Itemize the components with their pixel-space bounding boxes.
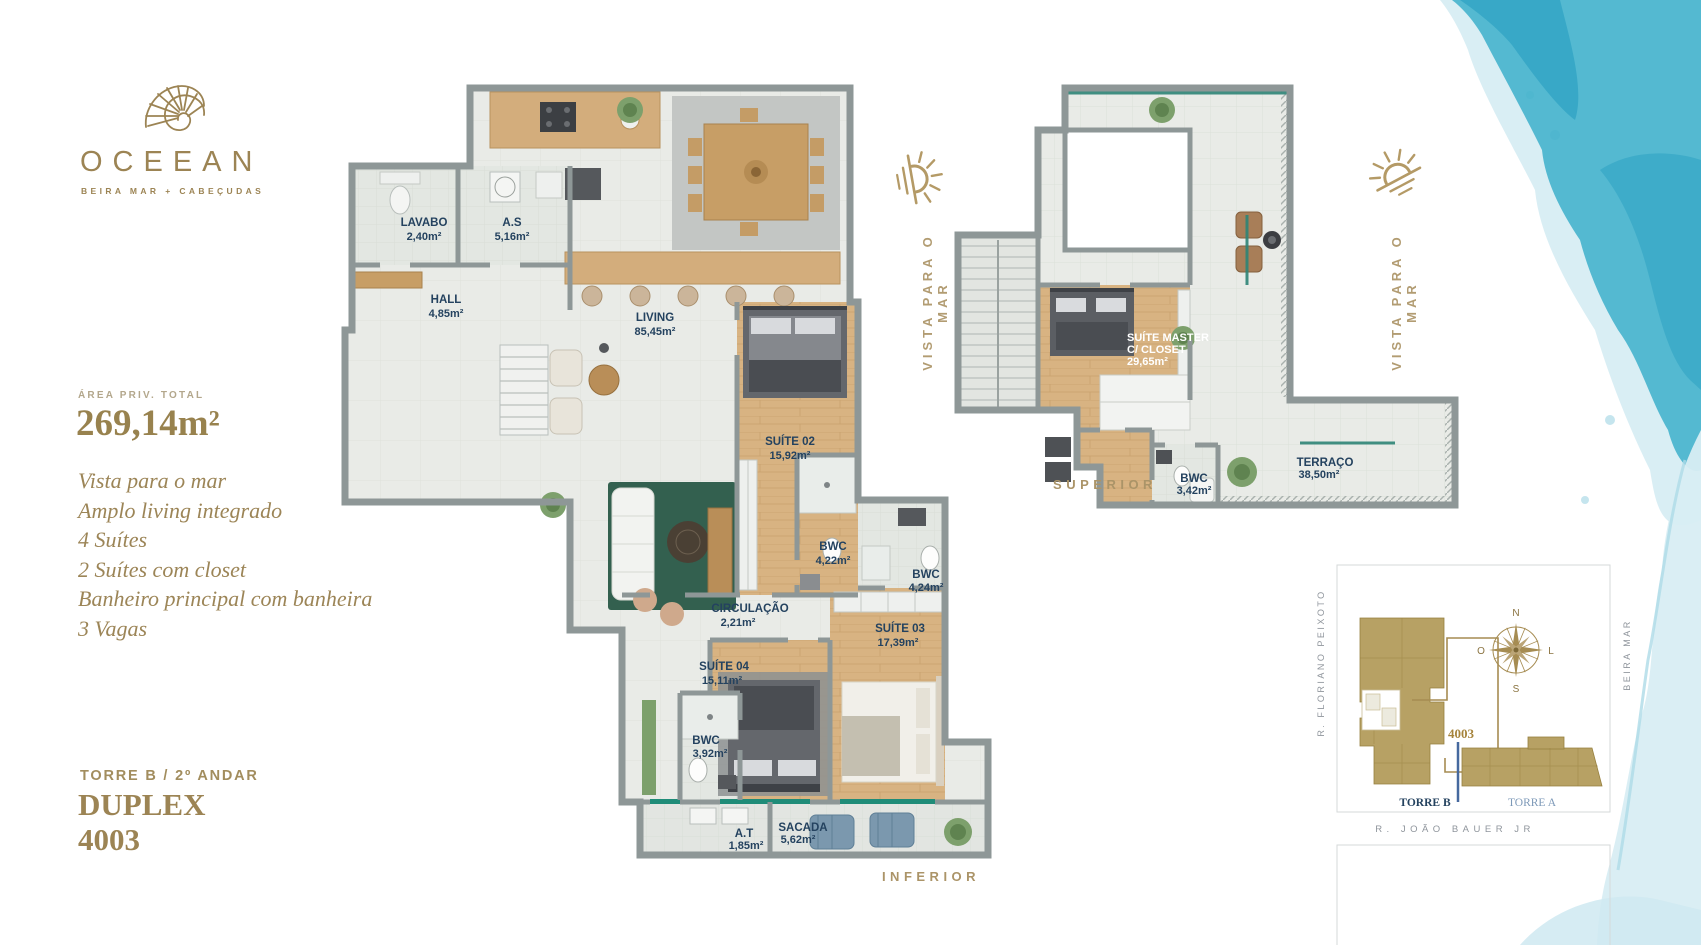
svg-text:5,16m²: 5,16m² [495, 231, 530, 243]
shell-logo-icon [134, 80, 214, 146]
svg-text:29,65m²: 29,65m² [1127, 356, 1168, 368]
svg-text:5,62m²: 5,62m² [781, 834, 816, 846]
private-area-value: 269,14m² [76, 402, 220, 445]
room-label-suite02: SUÍTE 02 [765, 435, 815, 448]
adjacent-block-frame [1337, 845, 1610, 945]
room-label-living: LIVING [636, 312, 674, 324]
floorplan-brochure: OCEEAN BEIRA MAR + CABEÇUDAS ÁREA PRIV. … [0, 0, 1701, 945]
inferior-caption: INFERIOR [856, 869, 1006, 884]
room-label-bwc3: BWC [692, 735, 719, 747]
room-label-suite-master: SUÍTE MASTER [1127, 331, 1209, 344]
svg-text:85,45m²: 85,45m² [635, 326, 676, 338]
svg-text:15,11m²: 15,11m² [702, 675, 743, 687]
room-label-bwc2: BWC [912, 569, 939, 581]
site-map: N S O L 4003 TORRE B TORRE A R. JOÃO BAU… [1310, 558, 1650, 945]
tower-floor-label: TORRE B / 2º ANDAR [80, 768, 259, 784]
brand-tagline: BEIRA MAR + CABEÇUDAS [81, 186, 341, 196]
street-floriano-peixoto-label: R. FLORIANO PEIXOTO [1316, 589, 1326, 736]
torre-b-label: TORRE B [1399, 797, 1451, 809]
unit-type-label: DUPLEX [78, 788, 205, 821]
superior-caption: SUPERIOR [1030, 477, 1180, 492]
svg-text:L: L [1548, 646, 1554, 657]
svg-text:N: N [1512, 608, 1519, 619]
street-beira-mar-label: BEIRA MAR [1622, 619, 1632, 691]
room-label-sacada: SACADA [778, 822, 827, 834]
private-area-label: ÁREA PRIV. TOTAL [78, 390, 204, 401]
svg-text:3,92m²: 3,92m² [693, 748, 728, 760]
room-label-as: A.S [502, 217, 522, 229]
svg-text:4,22m²: 4,22m² [816, 555, 851, 567]
inferior-floor-plan: LAVABO 2,40m² A.S 5,16m² HALL 4,85m² LIV… [340, 80, 1000, 864]
stairs [500, 345, 548, 435]
svg-text:O: O [1477, 646, 1485, 657]
svg-text:1,85m²: 1,85m² [729, 840, 764, 852]
torre-a-label: TORRE A [1508, 797, 1557, 809]
svg-text:17,39m²: 17,39m² [878, 637, 919, 649]
room-label-bwc1: BWC [819, 541, 846, 553]
svg-text:2,21m²: 2,21m² [721, 617, 756, 629]
room-label-at: A.T [735, 828, 754, 840]
room-label-lavabo: LAVABO [401, 217, 448, 229]
room-label-superior-bwc: BWC [1180, 473, 1207, 485]
room-label-suite03: SUÍTE 03 [875, 622, 925, 635]
superior-floor-plan: SUÍTE MASTER C/ CLOSET 29,65m² BWC 3,42m… [950, 80, 1465, 520]
room-label-hall: HALL [431, 294, 462, 306]
room-label-suite04: SUÍTE 04 [699, 660, 749, 673]
brand-name: OCEEAN [80, 146, 340, 179]
svg-text:15,92m²: 15,92m² [770, 450, 811, 462]
room-label-terraco: TERRAÇO [1297, 457, 1354, 469]
svg-text:2,40m²: 2,40m² [407, 231, 442, 243]
svg-text:4,85m²: 4,85m² [429, 308, 464, 320]
svg-text:S: S [1513, 684, 1520, 695]
unit-number-label: 4003 [78, 822, 140, 858]
svg-text:3,42m²: 3,42m² [1177, 485, 1212, 497]
street-joao-bauer-label: R. JOÃO BAUER JR [1375, 824, 1535, 835]
svg-text:4,24m²: 4,24m² [909, 582, 944, 594]
svg-text:C/ CLOSET: C/ CLOSET [1127, 344, 1186, 356]
unit-4003-map-label: 4003 [1448, 726, 1475, 741]
svg-text:38,50m²: 38,50m² [1299, 469, 1340, 481]
room-label-circulacao: CIRCULAÇÃO [711, 602, 788, 615]
superior-stairs [958, 235, 1038, 410]
